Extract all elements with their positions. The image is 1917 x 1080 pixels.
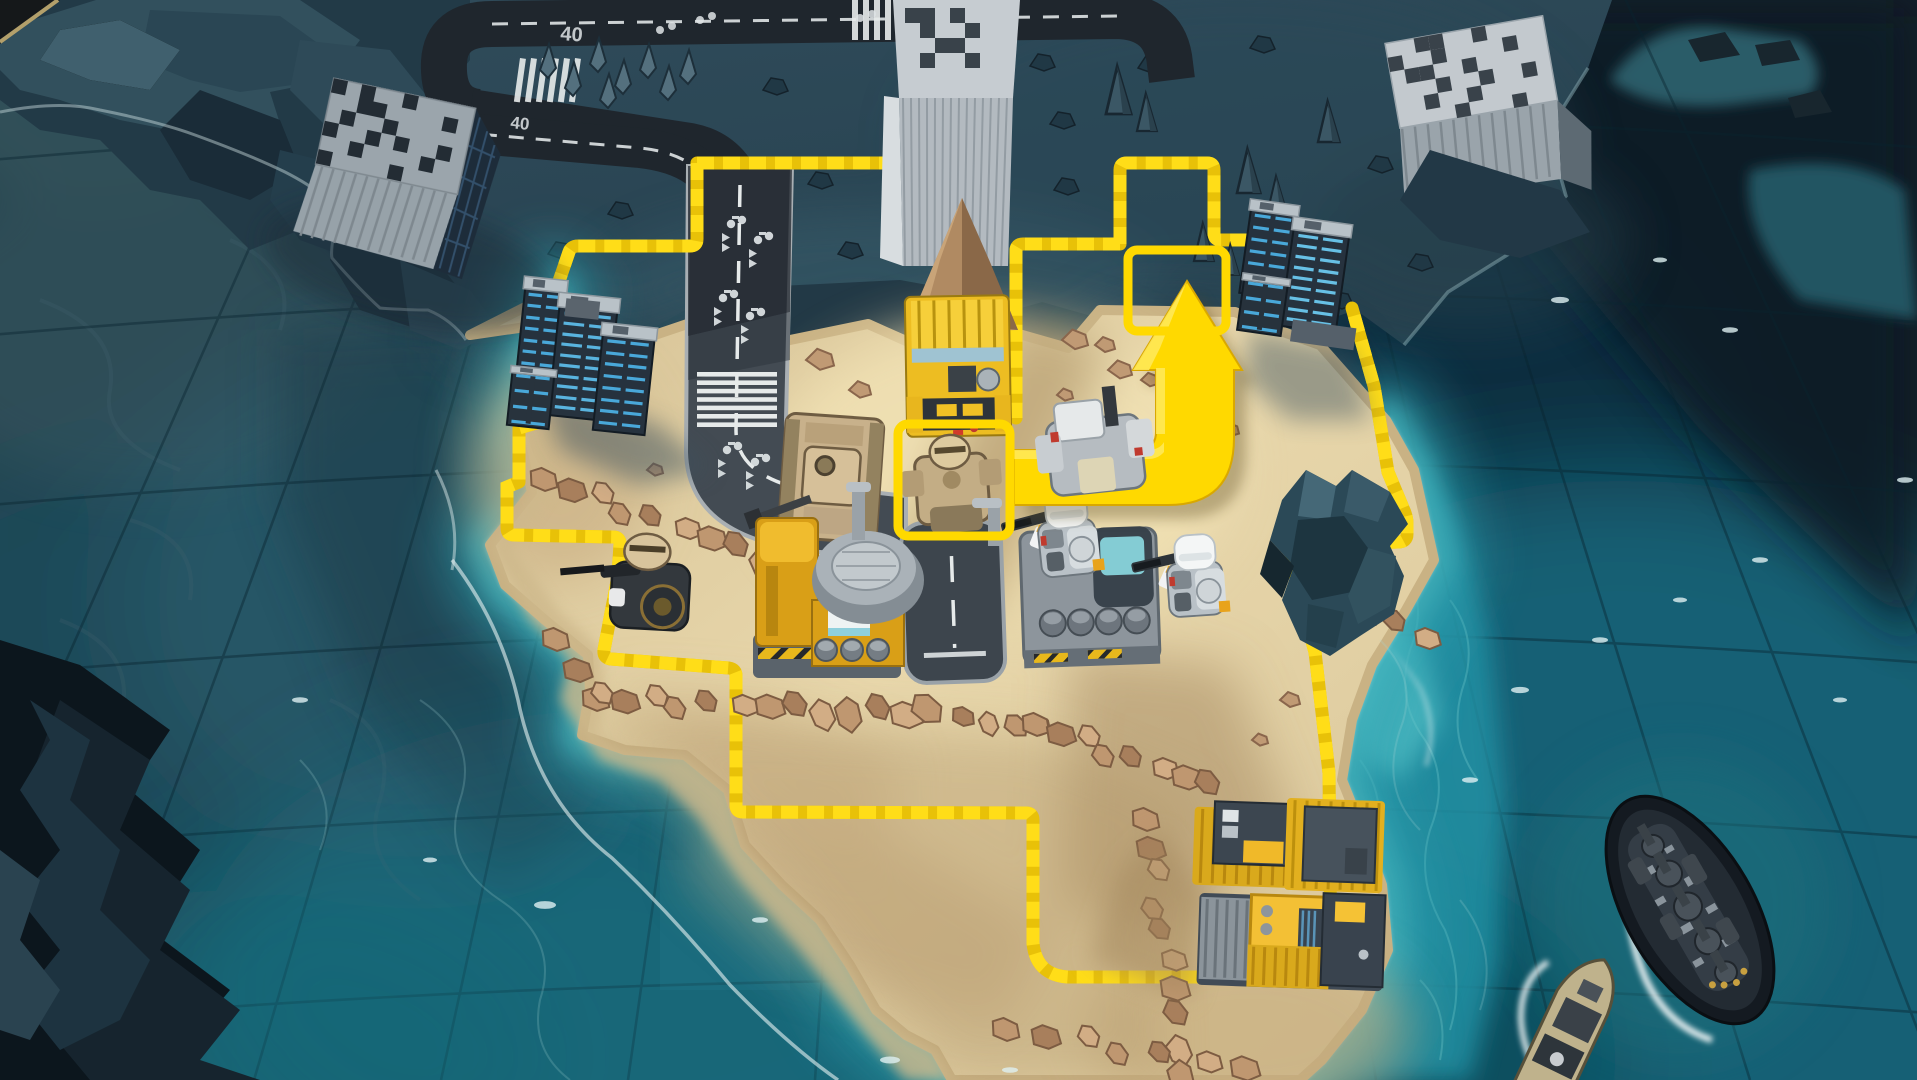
svg-text:40: 40 (510, 113, 531, 134)
svg-text:40: 40 (560, 23, 584, 46)
